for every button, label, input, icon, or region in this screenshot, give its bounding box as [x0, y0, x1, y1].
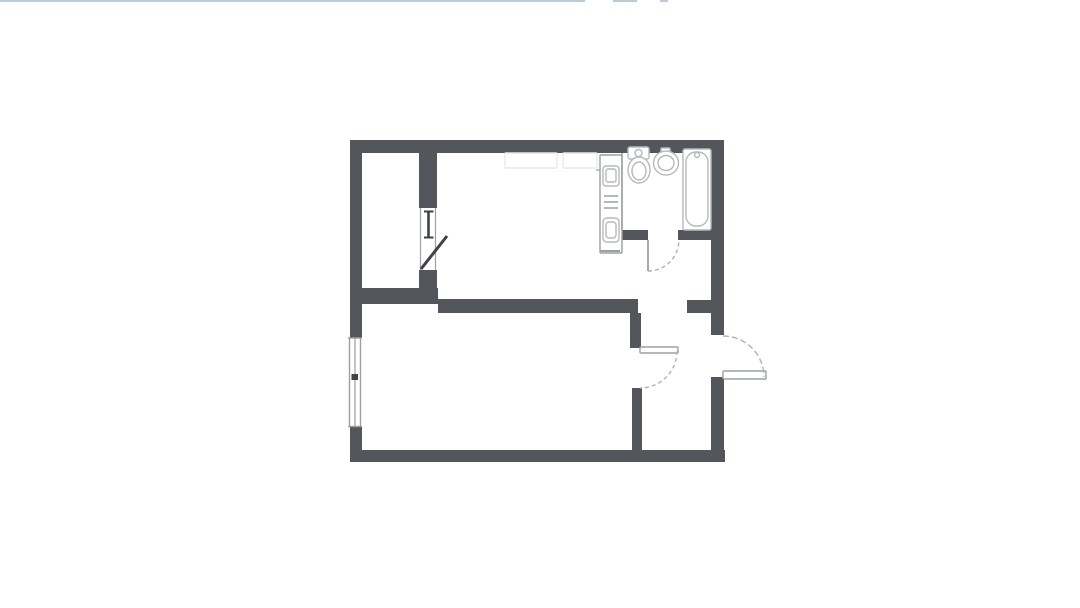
bathroom-wall-left-segment [620, 230, 648, 240]
screenshot-canvas [0, 0, 1080, 608]
closet-partition-upper [419, 153, 437, 208]
room-area-kitchen [437, 153, 623, 299]
room-area-hallway [642, 313, 711, 450]
right-wall-upper [711, 140, 724, 335]
hallway-wall-upper [630, 313, 641, 348]
room-area-upper-left [362, 153, 419, 288]
entry-door-leaf [723, 371, 766, 379]
kitchen-counter-ghost-a [505, 153, 557, 168]
hallway-wall-lower [632, 388, 642, 450]
bathroom-door-arc [648, 240, 679, 271]
hallway-door-arc [640, 351, 677, 388]
left-wall-upper [350, 140, 362, 304]
balcony-door-leaf [421, 236, 447, 269]
bathtub-outer [683, 149, 711, 230]
bottom-wall [350, 450, 725, 462]
mid-wall-center [438, 299, 638, 313]
toilet-bowl-outer [628, 157, 650, 183]
room-area-living [362, 313, 630, 450]
basin-outer [654, 151, 679, 175]
right-wall-lower [711, 377, 724, 462]
kitchen-counter-ghost-b [563, 153, 597, 168]
hallway-door-leaf [640, 347, 678, 353]
floor-plan [0, 0, 1080, 608]
mid-wall-right-stub [687, 300, 711, 313]
mid-wall-left [350, 288, 438, 304]
left-wall-mid [350, 300, 362, 338]
bathroom-wall-right-segment [678, 230, 711, 240]
